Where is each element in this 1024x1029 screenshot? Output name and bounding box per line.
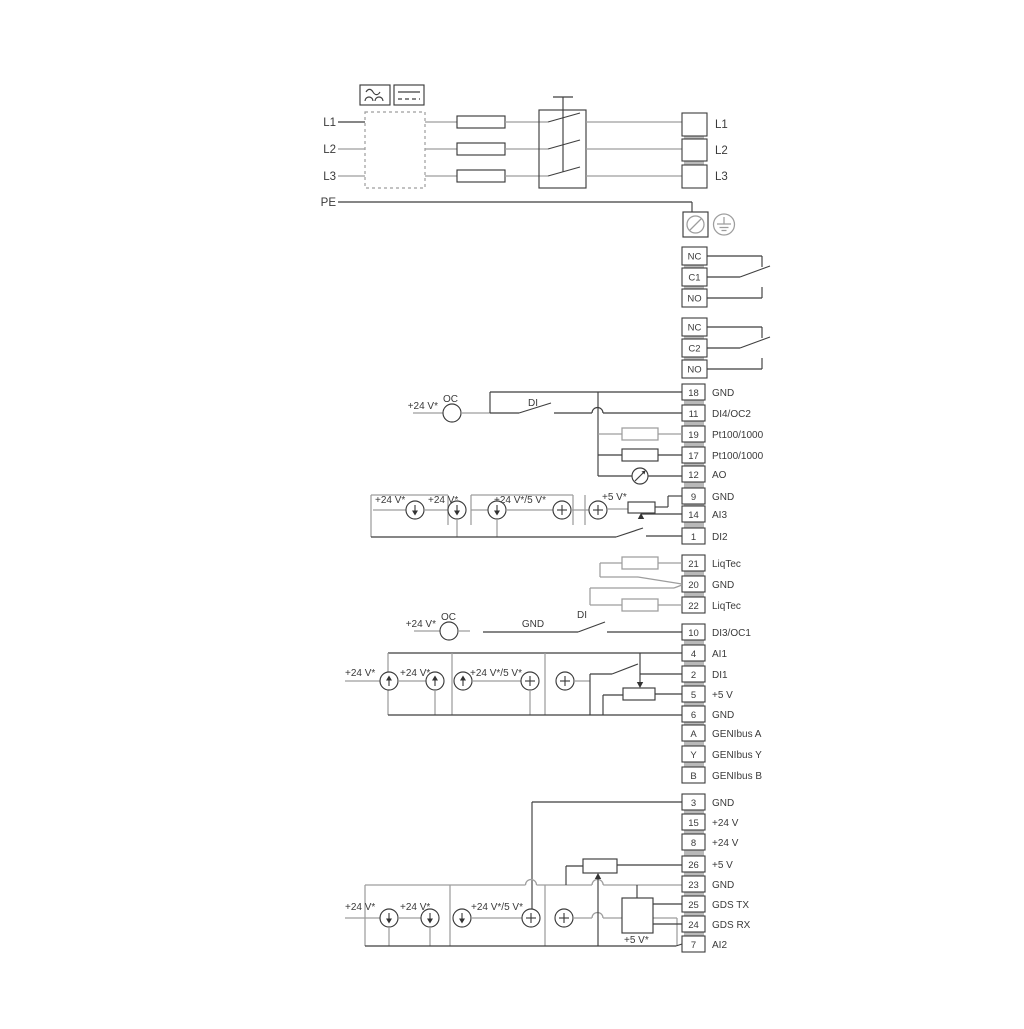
di-label: DI — [577, 610, 587, 621]
relay2-block: NC C2 NO — [682, 318, 770, 378]
di3-oc1-circuit: +24 V* OC GND DI — [406, 610, 682, 640]
open-collector-icon — [443, 404, 461, 422]
fuse — [457, 170, 505, 182]
ac-symbol-icon — [360, 85, 390, 105]
terminal-label: DI4/OC2 — [712, 409, 751, 420]
voltage-label: +5 V* — [624, 935, 649, 946]
gds-sensor-box — [622, 885, 682, 933]
terminal-label: +5 V — [712, 860, 733, 871]
terminal-number: 2 — [691, 670, 696, 681]
fuse — [457, 116, 505, 128]
wiring-diagram-page: L1 L2 L3 PE — [0, 0, 1024, 1024]
earth-ground-icon — [714, 214, 735, 235]
relay1-block: NC C1 NO — [682, 247, 770, 307]
terminal-label: AI3 — [712, 510, 727, 521]
relay2-changeover-switch — [707, 327, 770, 369]
terminal-number: 20 — [688, 580, 699, 591]
terminal-cell — [682, 113, 707, 136]
voltage-label: +24 V* — [400, 668, 430, 679]
relay-terminal-label: NO — [687, 365, 701, 376]
current-source-icon — [453, 909, 471, 927]
current-source-icon — [380, 672, 398, 690]
terminal-number: Y — [690, 750, 697, 761]
voltage-label: +24 V* — [408, 401, 438, 412]
terminal-number: 24 — [688, 920, 699, 931]
terminal-label: DI2 — [712, 532, 728, 543]
current-source-icon — [454, 672, 472, 690]
mains-input-label: L1 — [323, 117, 336, 129]
mains-output-label: L1 — [715, 119, 728, 131]
terminal-label: GENIbus B — [712, 771, 762, 782]
relay-terminal-label: NC — [688, 252, 702, 263]
terminal-label: GDS RX — [712, 920, 751, 931]
terminal-number: B — [690, 771, 696, 782]
current-source-plus-icon — [589, 501, 607, 519]
current-source-plus-icon — [522, 909, 540, 927]
terminal-label: GND — [712, 880, 734, 891]
switch — [616, 528, 643, 537]
resistor — [622, 557, 658, 569]
potentiometer — [628, 502, 655, 513]
dc-symbol-icon — [394, 85, 424, 105]
terminal-label: GDS TX — [712, 900, 749, 911]
io-mid-terminal-block: 10 4 2 5 6 A Y B DI3/OC1 AI1 DI1 +5 V GN… — [682, 624, 762, 783]
terminal-number: 15 — [688, 818, 699, 829]
terminal-label: GND — [712, 580, 734, 591]
io-bottom-terminal-block: 3 15 8 26 23 25 24 7 GND +24 V +24 V +5 … — [682, 794, 751, 952]
mains-terminal-block: L1 L2 L3 — [682, 113, 728, 188]
switch — [612, 664, 638, 674]
current-source-plus-icon — [521, 672, 539, 690]
terminal-number: 1 — [691, 532, 696, 543]
current-source-icon — [426, 672, 444, 690]
resistor — [622, 599, 658, 611]
voltage-label: +24 V* — [375, 495, 405, 506]
screw-terminal-icon — [683, 212, 708, 237]
mains-input-label: PE — [321, 197, 337, 209]
mains-input-label: L3 — [323, 171, 336, 183]
terminal-number: 10 — [688, 628, 699, 639]
ai2-gds-circuit: +24 V* +24 V* +24 V*/5 V* — [345, 802, 682, 946]
terminal-label: GENIbus A — [712, 729, 762, 740]
converter-dashed-box — [365, 112, 425, 188]
terminal-number: 22 — [688, 601, 699, 612]
potentiometer — [583, 859, 617, 873]
terminal-number: 21 — [688, 559, 699, 570]
current-source-icon — [488, 501, 506, 519]
relay-terminal-label: NO — [687, 294, 701, 305]
terminal-number: 14 — [688, 510, 699, 521]
terminal-number: 26 — [688, 860, 699, 871]
terminal-number: 12 — [688, 470, 699, 481]
terminal-number: 11 — [689, 409, 699, 420]
terminal-label: GENIbus Y — [712, 750, 762, 761]
terminal-cell — [682, 139, 707, 161]
oc-label: OC — [441, 612, 456, 623]
current-source-plus-icon — [555, 909, 573, 927]
main-switch — [539, 97, 586, 188]
current-source-icon — [380, 909, 398, 927]
wiper-arrow — [595, 873, 601, 879]
terminal-label: LiqTec — [712, 601, 741, 612]
terminal-label: AO — [712, 470, 727, 481]
fuse — [457, 143, 505, 155]
voltage-label: +5 V* — [602, 492, 627, 503]
terminal-label: +24 V — [712, 818, 739, 829]
terminal-number: 17 — [688, 451, 699, 462]
terminal-label: AI2 — [712, 940, 727, 951]
current-source-icon — [421, 909, 439, 927]
terminal-number: 18 — [688, 388, 699, 399]
terminal-number: 3 — [691, 798, 696, 809]
terminal-number: 7 — [691, 940, 696, 951]
io-top-terminal-block: 18 11 19 17 12 9 14 1 GND DI4/OC2 Pt100/… — [682, 384, 764, 544]
current-source-plus-icon — [553, 501, 571, 519]
current-source-plus-icon — [556, 672, 574, 690]
relay-terminal-label: NC — [688, 323, 702, 334]
wiper-arrow — [637, 682, 643, 688]
voltage-label: +24 V* — [345, 902, 375, 913]
oc-label: OC — [443, 394, 458, 405]
voltage-label: +24 V*/5 V* — [470, 668, 522, 679]
gnd-label: GND — [522, 619, 544, 630]
terminal-number: 8 — [691, 838, 696, 849]
mains-output-label: L3 — [715, 171, 728, 183]
ai1-di1-circuit: +24 V* +24 V* +24 V*/5 V* — [345, 653, 682, 715]
liqtec-terminal-block: 21 20 22 LiqTec GND LiqTec — [590, 555, 741, 613]
wiring-diagram: L1 L2 L3 PE — [0, 0, 1024, 1024]
terminal-label: Pt100/1000 — [712, 430, 764, 441]
terminal-number: 6 — [691, 710, 696, 721]
terminal-number: 19 — [688, 430, 699, 441]
mains-section: L1 L2 L3 PE — [321, 85, 735, 237]
liqtec-sensor-wiring — [590, 557, 682, 611]
resistor — [622, 428, 658, 440]
gauge-icon — [632, 468, 648, 484]
terminal-label: DI1 — [712, 670, 728, 681]
terminal-label: GND — [712, 492, 734, 503]
terminal-number: 9 — [691, 492, 696, 503]
terminal-number: A — [690, 729, 697, 740]
terminal-cell — [682, 165, 707, 188]
current-source-icon — [448, 501, 466, 519]
voltage-label: +24 V*/5 V* — [471, 902, 523, 913]
potentiometer — [623, 688, 655, 700]
mains-output-label: L2 — [715, 145, 728, 157]
terminal-label: +24 V — [712, 838, 739, 849]
current-source-icon — [406, 501, 424, 519]
open-collector-icon — [440, 622, 458, 640]
voltage-label: +24 V* — [406, 619, 436, 630]
resistor — [622, 449, 658, 461]
terminal-number: 5 — [691, 690, 696, 701]
terminal-label: Pt100/1000 — [712, 451, 764, 462]
terminal-label: GND — [712, 388, 734, 399]
relay1-changeover-switch — [707, 256, 770, 298]
relay-terminal-label: C2 — [688, 344, 700, 355]
di4-oc2-circuit: +24 V* OC DI — [408, 392, 682, 484]
mains-input-label: L2 — [323, 144, 336, 156]
terminal-label: GND — [712, 798, 734, 809]
terminal-number: 23 — [688, 880, 699, 891]
relay-terminal-label: C1 — [688, 273, 700, 284]
switch — [578, 622, 605, 632]
terminal-label: LiqTec — [712, 559, 741, 570]
terminal-label: AI1 — [712, 649, 727, 660]
wire-hop — [526, 880, 537, 886]
ai3-di2-circuit: +24 V* +24 V* +24 V*/5 V* +5 V* — [371, 492, 682, 537]
terminal-label: DI3/OC1 — [712, 628, 751, 639]
terminal-number: 4 — [691, 649, 696, 660]
terminal-number: 25 — [688, 900, 699, 911]
terminal-label: GND — [712, 710, 734, 721]
voltage-label: +24 V* — [345, 668, 375, 679]
terminal-label: +5 V — [712, 690, 733, 701]
